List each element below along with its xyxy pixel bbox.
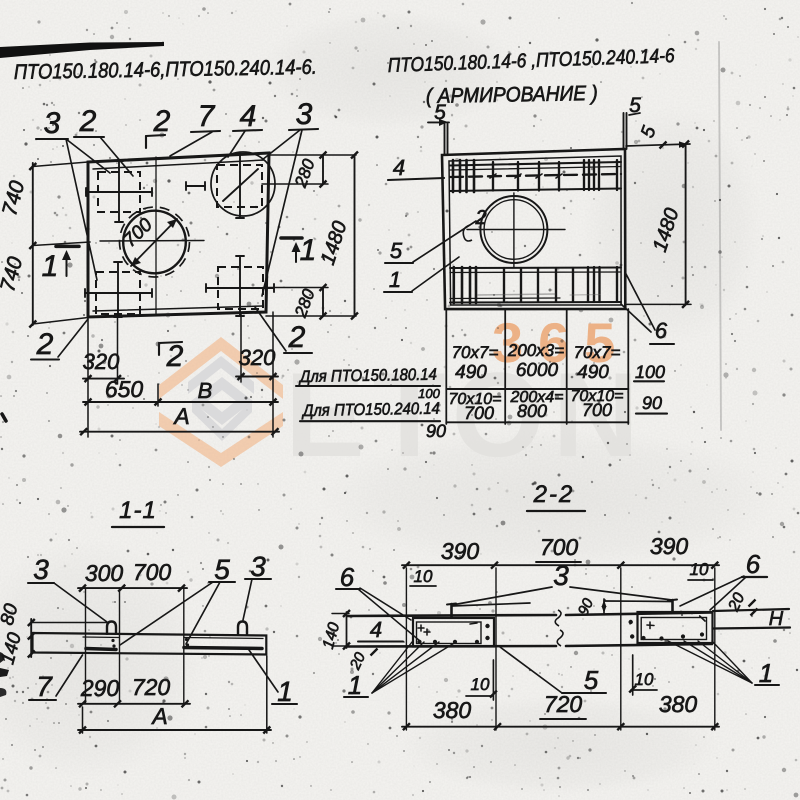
svg-text:2-2: 2-2 [533, 481, 575, 508]
svg-text:10: 10 [635, 670, 654, 689]
svg-text:2: 2 [79, 105, 97, 138]
svg-text:800: 800 [517, 401, 547, 421]
svg-text:7: 7 [198, 100, 216, 133]
svg-text:90: 90 [642, 393, 662, 413]
svg-text:700: 700 [540, 534, 579, 560]
svg-text:3: 3 [250, 551, 266, 582]
svg-text:90: 90 [426, 421, 446, 441]
svg-text:10: 10 [471, 675, 490, 694]
svg-text:3: 3 [296, 98, 313, 131]
svg-text:200х3=: 200х3= [507, 341, 564, 360]
svg-text:10: 10 [690, 560, 709, 579]
svg-text:6000: 6000 [516, 360, 559, 381]
svg-text:2: 2 [36, 328, 54, 361]
svg-text:10: 10 [414, 567, 433, 586]
svg-text:300: 300 [85, 560, 124, 586]
svg-text:1: 1 [348, 670, 362, 700]
svg-text:390: 390 [441, 538, 480, 564]
svg-text:720: 720 [544, 691, 583, 717]
svg-text:Для ПТО150.240.14: Для ПТО150.240.14 [301, 400, 440, 420]
svg-text:70х7=: 70х7= [452, 343, 499, 362]
svg-text:490: 490 [577, 362, 609, 383]
svg-text:4: 4 [240, 100, 257, 133]
svg-text:2: 2 [288, 321, 306, 354]
svg-text:6: 6 [746, 549, 761, 579]
svg-text:Н: Н [769, 608, 784, 630]
svg-text:700: 700 [582, 400, 612, 420]
svg-text:2: 2 [166, 340, 184, 373]
svg-text:1: 1 [277, 676, 293, 707]
svg-text:1: 1 [759, 658, 773, 688]
svg-text:5: 5 [434, 101, 446, 124]
svg-text:1: 1 [42, 250, 59, 283]
svg-text:А: А [172, 403, 189, 429]
svg-text:7: 7 [36, 671, 53, 702]
svg-text:290: 290 [80, 675, 120, 701]
svg-text:390: 390 [650, 533, 689, 559]
svg-text:700: 700 [133, 559, 172, 585]
svg-text:490: 490 [455, 362, 487, 383]
svg-text:Для ПТО150.180.14: Для ПТО150.180.14 [298, 366, 437, 386]
svg-text:2: 2 [474, 207, 486, 229]
svg-text:6: 6 [340, 562, 355, 592]
svg-text:4: 4 [370, 617, 382, 642]
svg-text:3: 3 [33, 554, 49, 585]
svg-text:3: 3 [44, 107, 61, 140]
svg-text:320: 320 [239, 345, 276, 370]
svg-text:5: 5 [390, 238, 403, 263]
svg-text:6: 6 [655, 318, 668, 343]
svg-text:380: 380 [659, 691, 698, 717]
svg-text:700: 700 [464, 403, 494, 423]
svg-text:5: 5 [214, 554, 230, 585]
svg-text:100: 100 [635, 362, 665, 382]
svg-text:650: 650 [105, 376, 144, 402]
svg-text:1: 1 [389, 267, 401, 292]
svg-text:320: 320 [83, 349, 120, 374]
svg-text:70х7=: 70х7= [574, 343, 621, 362]
svg-text:А: А [150, 703, 167, 729]
svg-text:1-1: 1-1 [119, 497, 157, 524]
